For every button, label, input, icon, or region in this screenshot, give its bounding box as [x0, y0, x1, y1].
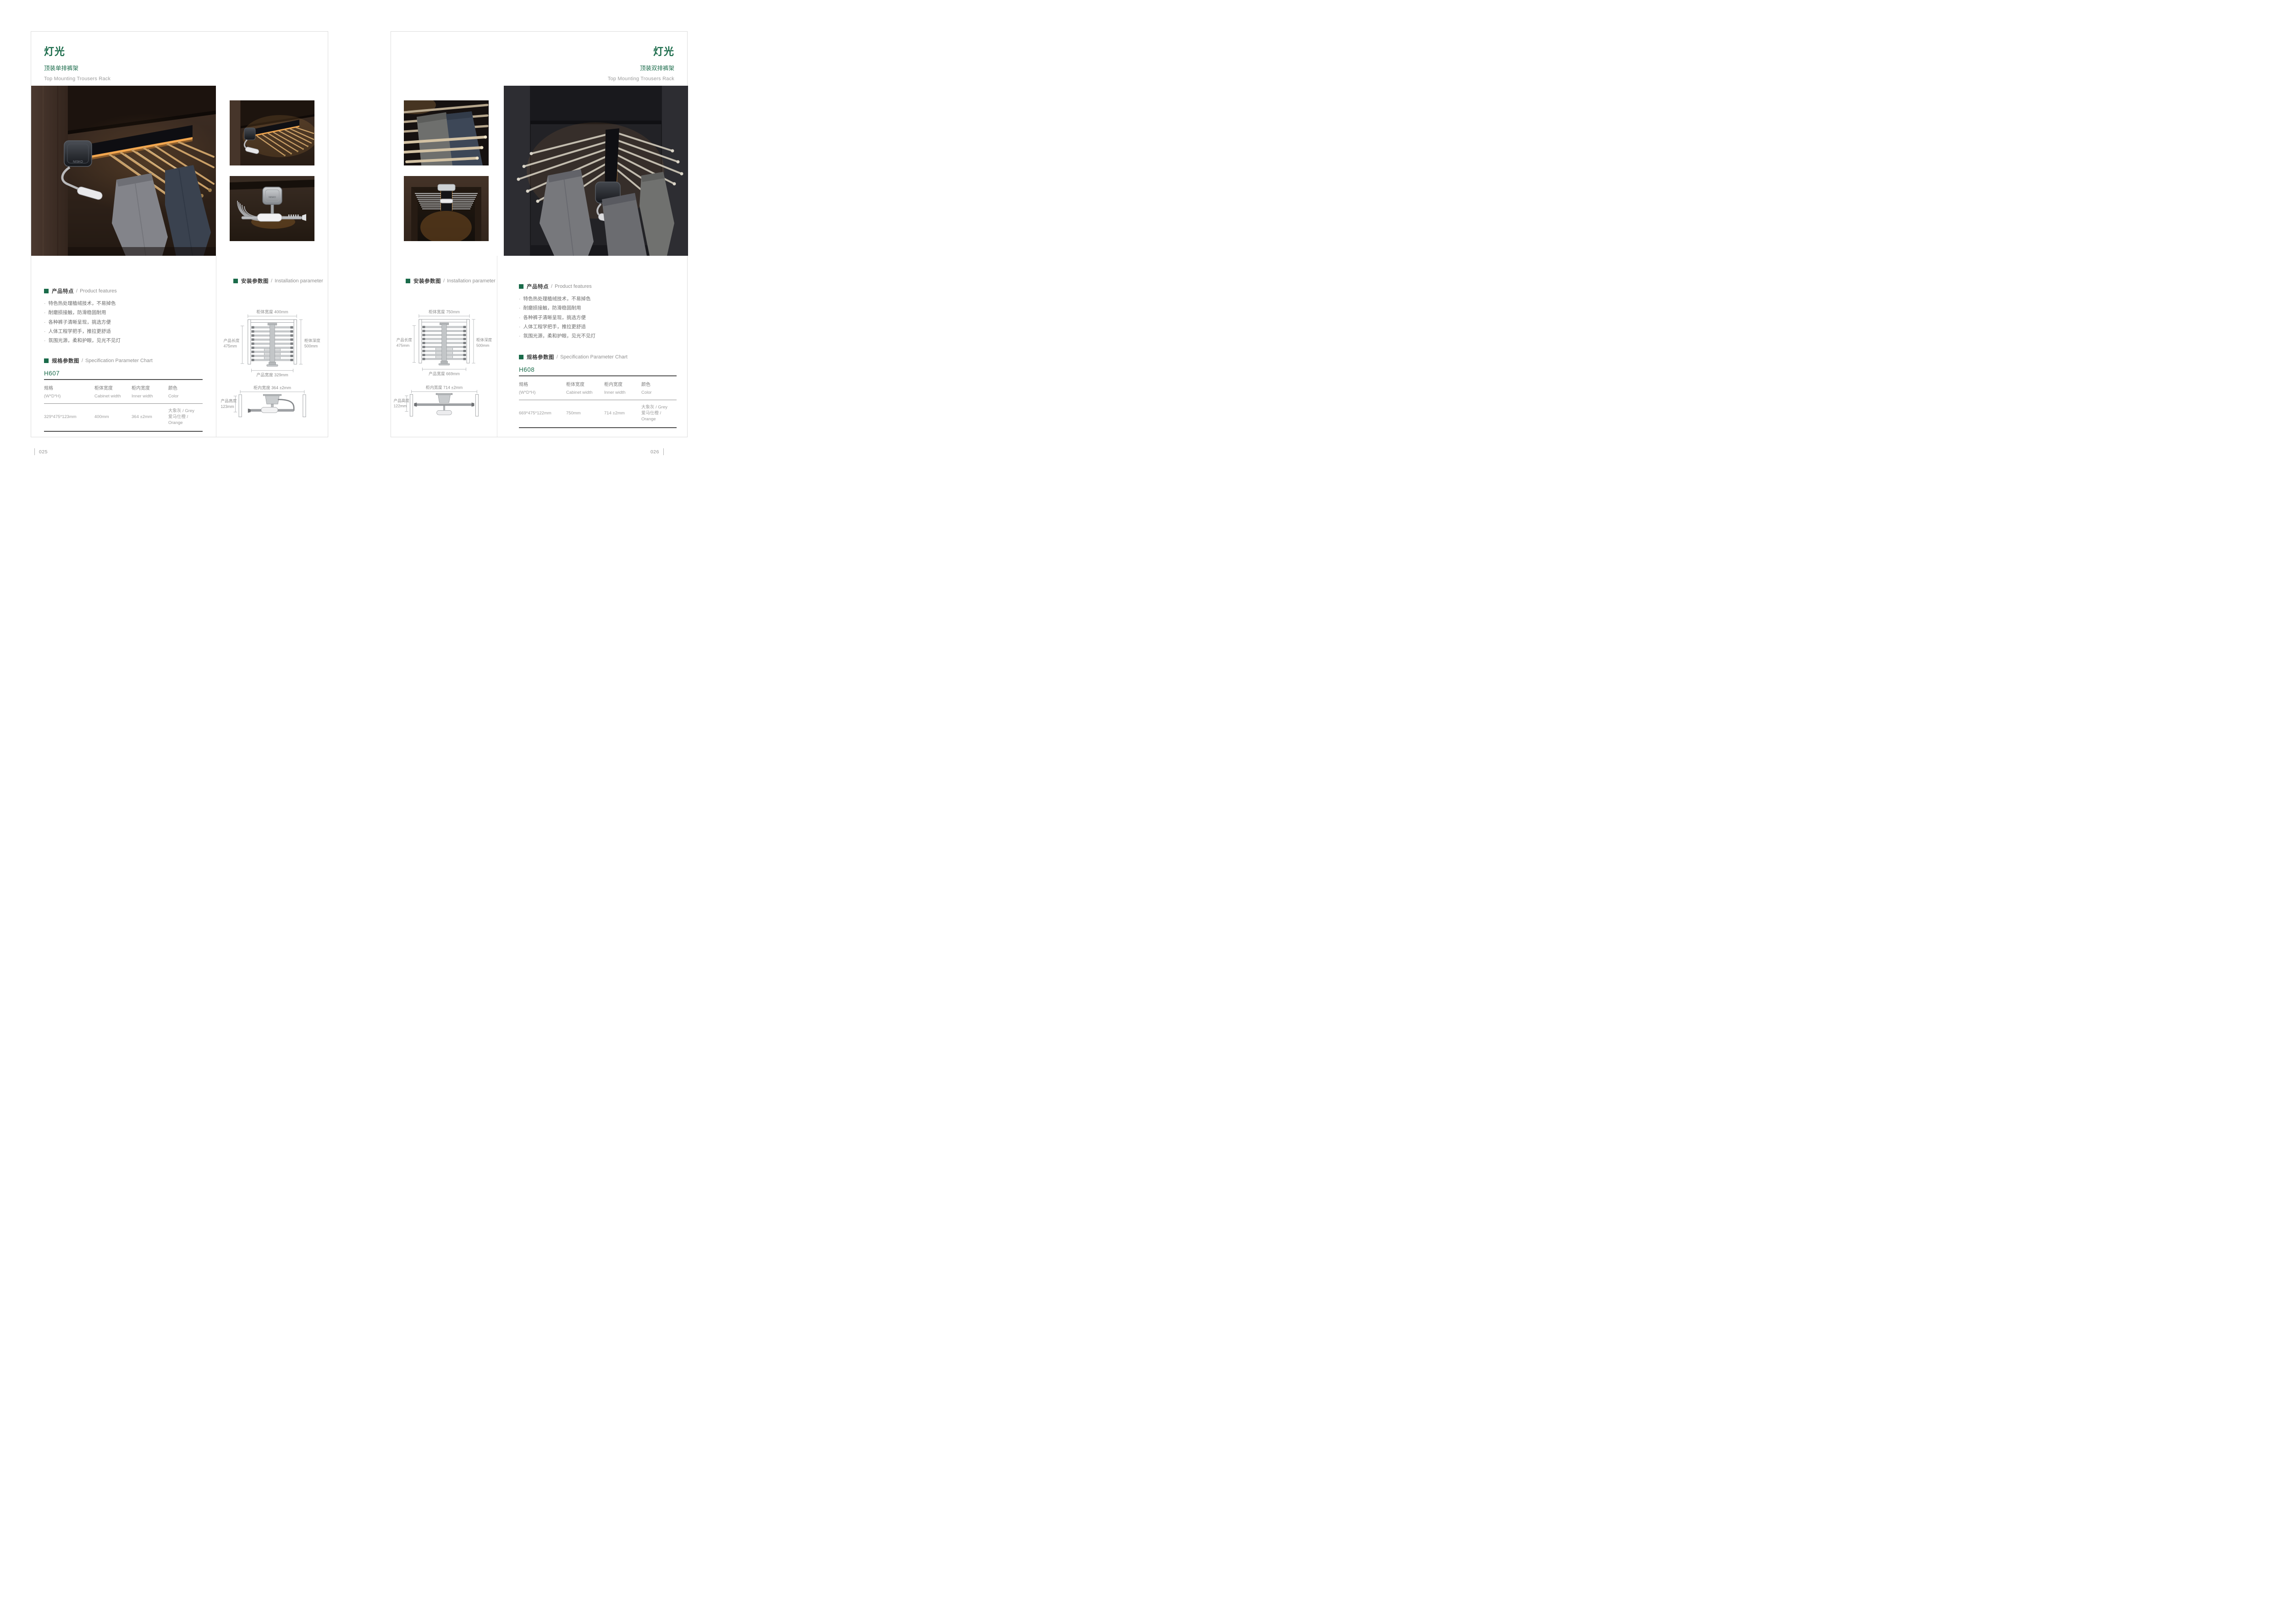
dim-product-width: 产品宽度 329mm	[256, 372, 288, 377]
green-square-icon	[44, 358, 49, 363]
spec-table-data-row: 329*475*123mm 400mm 364 ±2mm 大象灰 / Grey …	[44, 404, 203, 431]
spec-heading: 规格参数图 / Specification Parameter Chart	[44, 357, 153, 364]
dim-product-height-value: 123mm	[221, 404, 234, 409]
spec-table: 规格(W*D*H) 柜体宽度Cabinet width 柜内宽度Inner wi…	[44, 379, 203, 432]
photo-detail-bars-closeup	[404, 100, 489, 165]
install-section-heading: 安装参数图 / Installation parameter	[406, 277, 496, 285]
spec-col-cabinet-width: 柜体宽度Cabinet width	[566, 380, 604, 395]
spec-value-size: 669*475*122mm	[519, 411, 566, 417]
features-list: ·特色热处理植绒技术，不易掉色 ·耐磨损接触，防滑稳固耐用 ·各种裤子清晰呈现，…	[519, 296, 595, 339]
page-number-divider	[663, 448, 664, 455]
mounting-cap	[438, 184, 455, 191]
photo-detail-retracted-rack: NISKO	[230, 176, 314, 241]
page-title: 灯光	[608, 44, 674, 58]
dim-cabinet-depth-label: 柜体深度	[304, 338, 320, 343]
install-section-heading: 安装参数图 / Installation parameter	[233, 277, 323, 285]
spec-col-color: 颜色Color	[168, 384, 203, 399]
photo-main-single-rack: NISKO	[31, 86, 216, 256]
page-number-divider	[34, 448, 35, 455]
product-subtitle: 顶装单排裤架	[44, 63, 110, 72]
dim-product-length-value: 475mm	[224, 344, 237, 348]
photo-main-double-rack	[504, 86, 688, 256]
features-heading: 产品特点 / Product features	[519, 283, 595, 290]
spec-value-inner-width: 364 ±2mm	[132, 414, 168, 420]
photo-main-double-rack-art	[504, 86, 688, 256]
feature-item: ·特色热处理植绒技术，不易掉色	[44, 301, 121, 306]
photo-detail-retracted-rack-art: NISKO	[230, 176, 314, 241]
spec-value-color: 大象灰 / Grey 爱马仕橙 / Orange	[168, 408, 203, 426]
feature-item: ·耐磨损接触，防滑稳固耐用	[519, 305, 595, 311]
spec-section: 规格参数图 / Specification Parameter Chart H6…	[44, 357, 153, 377]
dim-cabinet-depth-value: 500mm	[476, 343, 490, 347]
spec-table-data-row: 669*475*122mm 750mm 714 ±2mm 大象灰 / Grey …	[519, 400, 677, 427]
green-square-icon	[406, 279, 410, 283]
plan-diagram-h608-art: 柜体宽度 750mm 产品长度 475mm 柜体深度 500mm	[393, 308, 496, 377]
card-header-right: 灯光 顶装双排裤架 Top Mounting Trousers Rack	[608, 44, 674, 82]
dim-product-length-label: 产品长度	[397, 337, 413, 342]
brand-text: NISKO	[269, 196, 276, 199]
features-section: 产品特点 / Product features ·特色热处理植绒技术，不易掉色 …	[44, 287, 121, 347]
spec-col-size: 规格(W*D*H)	[44, 384, 94, 399]
green-square-icon	[44, 289, 49, 293]
spec-col-color: 颜色Color	[641, 380, 677, 395]
dim-product-length-value: 475mm	[397, 343, 410, 347]
front-handle	[437, 410, 452, 415]
front-diagram-h607: 柜内宽度 364 ±2mm 产品高度 123mm	[220, 385, 325, 424]
photo-detail-bars-closeup-art	[404, 100, 489, 165]
model-number: H607	[44, 370, 153, 377]
feature-item: ·氛围光源，柔和护眼，见光不见灯	[44, 338, 121, 343]
spec-section: 规格参数图 / Specification Parameter Chart H6…	[519, 353, 628, 373]
product-subtitle-en: Top Mounting Trousers Rack	[44, 76, 110, 82]
column-divider	[216, 256, 216, 437]
spec-col-size: 规格(W*D*H)	[519, 380, 566, 395]
feature-item: ·各种裤子清晰呈现，挑选方便	[44, 319, 121, 325]
plan-diagram-h607-art: 柜体宽度 400mm 产品长度 475mm 柜体深度 500mm	[220, 308, 325, 378]
dim-product-height-label: 产品高度	[394, 398, 410, 403]
feature-item: ·耐磨损接触，防滑稳固耐用	[44, 310, 121, 315]
column-divider	[497, 256, 497, 437]
plan-center-rail	[270, 325, 275, 362]
dim-product-height-label: 产品高度	[221, 398, 237, 403]
spec-col-inner-width: 柜内宽度Inner width	[604, 380, 641, 395]
photo-detail-empty-rack	[230, 100, 314, 165]
page-number-right: 026	[650, 448, 664, 455]
spec-table-header-row: 规格(W*D*H) 柜体宽度Cabinet width 柜内宽度Inner wi…	[519, 376, 677, 400]
plan-center-rail	[442, 324, 446, 361]
front-bracket	[438, 395, 451, 402]
green-square-icon	[233, 279, 238, 283]
features-heading: 产品特点 / Product features	[44, 287, 121, 295]
product-subtitle-en: Top Mounting Trousers Rack	[608, 76, 674, 82]
card-header-left: 灯光 顶装单排裤架 Top Mounting Trousers Rack	[44, 44, 110, 82]
page-number-left: 025	[34, 448, 48, 455]
spec-value-size: 329*475*123mm	[44, 414, 94, 420]
feature-item: ·各种裤子清晰呈现，挑选方便	[519, 315, 595, 320]
dim-product-length-label: 产品长度	[224, 338, 240, 343]
front-handle	[261, 407, 278, 413]
feature-item: ·人体工程学把手，推拉更舒适	[519, 324, 595, 330]
dim-product-width: 产品宽度 669mm	[429, 371, 460, 376]
product-card-h608: 灯光 顶装双排裤架 Top Mounting Trousers Rack	[391, 31, 688, 437]
dim-inner-width: 柜内宽度 364 ±2mm	[253, 385, 291, 390]
product-card-h607: 灯光 顶装单排裤架 Top Mounting Trousers Rack	[31, 31, 328, 437]
spec-col-cabinet-width: 柜体宽度Cabinet width	[94, 384, 132, 399]
feature-item: ·人体工程学把手，推拉更舒适	[44, 329, 121, 334]
spec-value-inner-width: 714 ±2mm	[604, 411, 641, 417]
product-subtitle: 顶装双排裤架	[608, 63, 674, 72]
feature-item: ·特色热处理植绒技术，不易掉色	[519, 296, 595, 302]
feature-item: ·氛围光源，柔和护眼，见光不见灯	[519, 333, 595, 339]
ergonomic-handle	[257, 214, 282, 221]
spec-value-cabinet-width: 400mm	[94, 414, 132, 420]
plan-diagram-h607: 柜体宽度 400mm 产品长度 475mm 柜体深度 500mm	[220, 308, 325, 378]
spec-heading: 规格参数图 / Specification Parameter Chart	[519, 353, 628, 361]
dim-product-height-value: 122mm	[394, 404, 407, 408]
dim-cabinet-depth-label: 柜体深度	[476, 337, 492, 342]
model-number: H608	[519, 366, 628, 373]
spec-value-cabinet-width: 750mm	[566, 411, 604, 417]
photo-detail-empty-rack-art	[230, 100, 314, 165]
front-diagram-h608-art: 柜内宽度 714 ±2mm 产品高度 122mm	[393, 385, 496, 423]
front-rail	[417, 404, 471, 406]
rack-front-cap	[244, 128, 255, 140]
page-title: 灯光	[44, 44, 110, 58]
spec-value-color: 大象灰 / Grey 爱马仕橙 / Orange	[641, 405, 677, 422]
dim-cabinet-width: 柜体宽度 750mm	[429, 309, 460, 314]
front-bracket	[265, 396, 279, 404]
plan-diagram-h608: 柜体宽度 750mm 产品长度 475mm 柜体深度 500mm	[393, 308, 496, 377]
front-diagram-h608: 柜内宽度 714 ±2mm 产品高度 122mm	[393, 385, 496, 423]
dim-cabinet-width: 柜体宽度 400mm	[256, 309, 288, 314]
dim-inner-width: 柜内宽度 714 ±2mm	[426, 385, 463, 390]
dim-cabinet-depth-value: 500mm	[304, 344, 318, 348]
features-list: ·特色热处理植绒技术，不易掉色 ·耐磨损接触，防滑稳固耐用 ·各种裤子清晰呈现，…	[44, 301, 121, 343]
green-square-icon	[519, 284, 523, 289]
photo-main-single-rack-art: NISKO	[31, 86, 216, 256]
catalog-spread: 灯光 顶装单排裤架 Top Mounting Trousers Rack	[0, 0, 707, 461]
spec-table: 规格(W*D*H) 柜体宽度Cabinet width 柜内宽度Inner wi…	[519, 375, 677, 428]
brand-text: NISKO	[73, 160, 83, 164]
handle	[440, 199, 453, 203]
features-section: 产品特点 / Product features ·特色热处理植绒技术，不易掉色 …	[519, 283, 595, 342]
green-square-icon	[519, 355, 523, 359]
spec-col-inner-width: 柜内宽度Inner width	[132, 384, 168, 399]
spec-table-header-row: 规格(W*D*H) 柜体宽度Cabinet width 柜内宽度Inner wi…	[44, 380, 203, 404]
front-diagram-h607-art: 柜内宽度 364 ±2mm 产品高度 123mm	[220, 385, 325, 424]
photo-detail-top-view-art	[404, 176, 489, 241]
photo-detail-top-view	[404, 176, 489, 241]
